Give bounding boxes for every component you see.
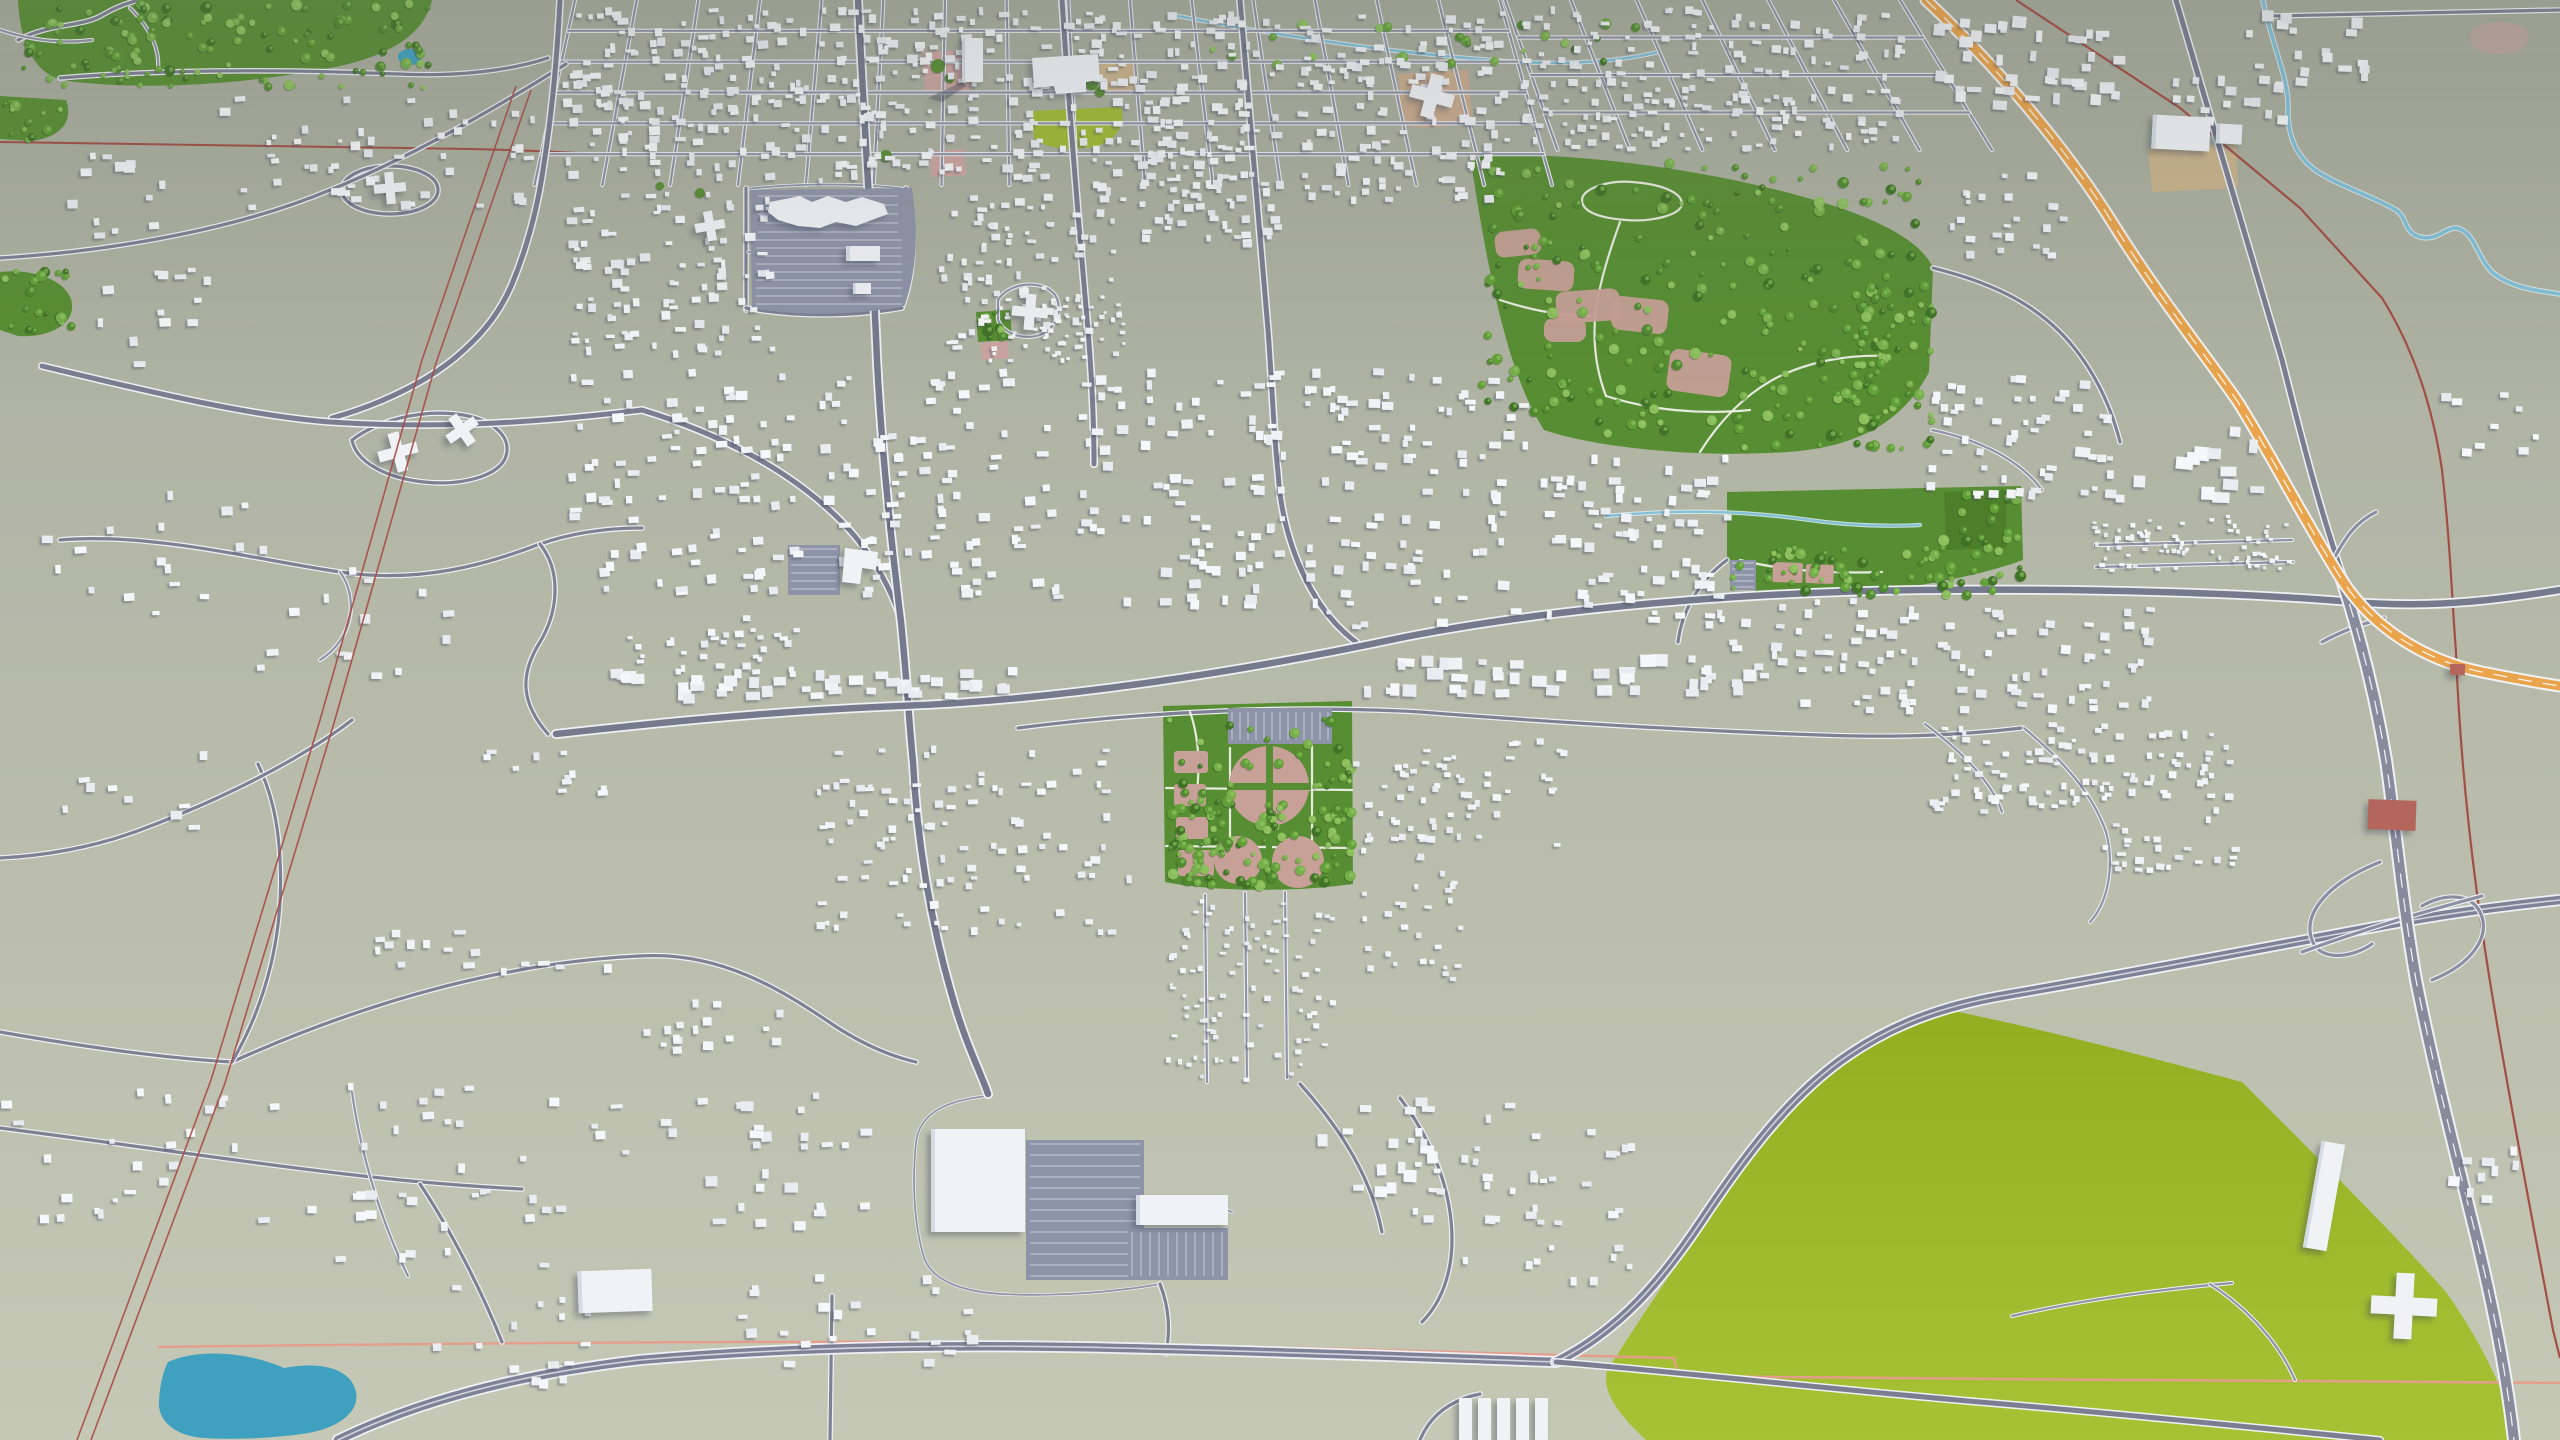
city-map-3d-render: [0, 0, 2560, 1440]
map-canvas: [0, 0, 2560, 1440]
light-vignette: [0, 0, 2560, 1440]
